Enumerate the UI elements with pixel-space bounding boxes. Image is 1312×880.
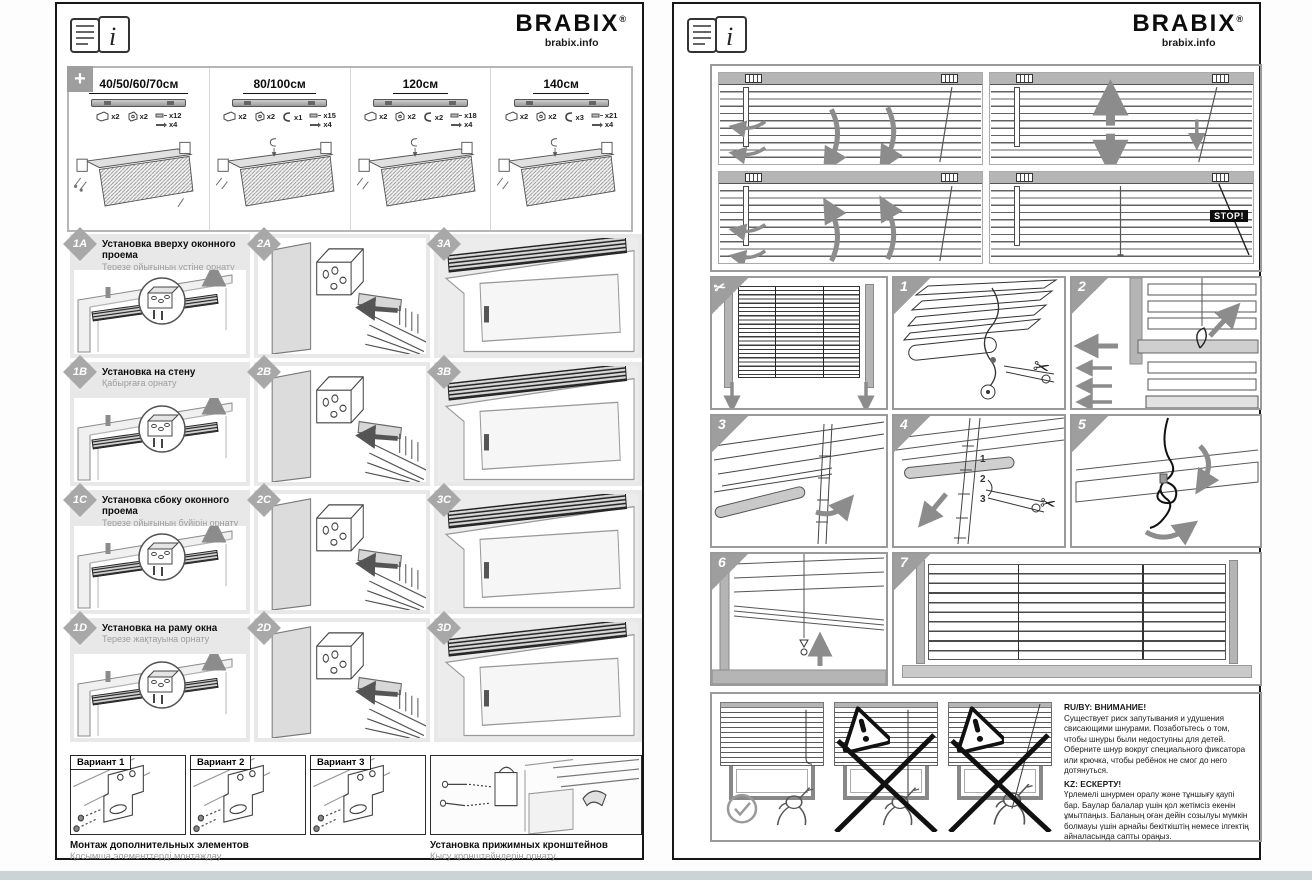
- step-title: Установка сбоку оконного проема: [102, 495, 246, 518]
- step-badge: 2B: [249, 357, 279, 387]
- step-badge: 3A: [429, 229, 459, 259]
- step-title: Установка на стену: [102, 367, 246, 378]
- step-2d-panel: 2D: [254, 618, 430, 742]
- registered-mark: ®: [1236, 14, 1245, 24]
- step-badge: 1C: [65, 485, 95, 515]
- cut-step-4-panel: 4 1 2 3 ✂: [892, 414, 1066, 548]
- step-row-c: 1C Установка сбоку оконного проемаТерезе…: [70, 490, 642, 614]
- rotation-arrows: [719, 73, 982, 164]
- install-illustration: [74, 654, 246, 738]
- danger-overlay: [948, 702, 1052, 832]
- brand-name: BRABIX: [1132, 10, 1236, 37]
- brand-site: brabix.info: [515, 37, 628, 49]
- parts-list: x2 x2 x12 x4: [69, 111, 209, 130]
- booklet-info-icon: i: [686, 14, 750, 56]
- variant-label: Вариант 2: [190, 755, 251, 770]
- blind-kit-illustration: [214, 133, 345, 219]
- clamp-illustration: [431, 756, 641, 834]
- plus-badge: +: [67, 66, 93, 92]
- caption-clamp-brackets: Установка прижимных кронштейнов Қысу кро…: [430, 840, 608, 861]
- scissors-icon: ✂: [711, 277, 749, 315]
- brand-logo: BRABIX® brabix.info: [515, 12, 628, 49]
- cut-step-7-panel: 7: [892, 552, 1262, 686]
- step-badge: 1D: [65, 613, 95, 643]
- bottom-strip: [0, 871, 1312, 880]
- step-badge: 1A: [65, 229, 95, 259]
- bracket-icon: [127, 111, 138, 122]
- brand-site: brabix.info: [1132, 37, 1245, 49]
- step-badge: 1B: [65, 357, 95, 387]
- step-1b-panel: 1B Установка на стенуҚабырғаға орнату: [70, 362, 250, 486]
- blind-kit-illustration: [73, 133, 204, 219]
- clamp-brackets-panel: [430, 755, 642, 835]
- variant-label: Вариант 3: [310, 755, 371, 770]
- screws-dowels-icon: [309, 112, 321, 119]
- step-3a-panel: 3A: [434, 234, 642, 358]
- kit-size-80-100: 80/100см x2 x2 x1 x15 x4: [209, 68, 350, 230]
- step-row-b: 1B Установка на стенуҚабырғаға орнату 2B…: [70, 362, 642, 486]
- bracket-icon: [505, 111, 518, 122]
- cut-step-6-panel: 6: [710, 552, 888, 686]
- svg-text:i: i: [109, 22, 116, 51]
- bracket-icon: [254, 111, 265, 122]
- step-badge: 2C: [249, 485, 279, 515]
- warning-title-ru: RU/BY: ВНИМАНИЕ!: [1064, 702, 1146, 712]
- variant-1-panel: Вариант 1: [70, 755, 186, 835]
- step-badge: 2D: [249, 613, 279, 643]
- step-badge: 3C: [429, 485, 459, 515]
- cut-step-1-panel: 1 ✂: [892, 276, 1066, 410]
- child-figure: [884, 788, 920, 825]
- operation-panel: STOP!: [710, 64, 1262, 272]
- size-label: 80/100см: [243, 77, 315, 94]
- parts-list: x2 x2 x3 x21 x4: [491, 111, 631, 130]
- danger-example-2: [948, 702, 1052, 832]
- booklet-info-icon: i: [69, 14, 133, 56]
- screws-dowels-icon: [450, 112, 462, 119]
- size-label: 140см: [533, 77, 589, 94]
- support-clip-icon: [423, 111, 433, 123]
- lift-arrows: [990, 73, 1253, 164]
- warning-body-ru: Существует риск запутывания и удушения с…: [1064, 714, 1252, 777]
- support-clip-icon: [564, 111, 574, 123]
- support-clip-icon: [282, 111, 292, 123]
- step-3b-panel: 3B: [434, 362, 642, 486]
- kit-size-120: 120см x2 x2 x2 x18 x4: [350, 68, 491, 230]
- step-row-d: 1D Установка на раму окнаТерезе жақтауын…: [70, 618, 642, 742]
- step-number-badge: 4: [893, 415, 931, 453]
- danger-example-1: [834, 702, 938, 832]
- result-illustration: [438, 622, 638, 738]
- bracket-detail-illustration: [258, 366, 426, 482]
- step-3d-panel: 3D: [434, 618, 642, 742]
- kit-size-40-70: 40/50/60/70см x2 x2 x12 x4: [69, 68, 209, 230]
- step-number-badge: 1: [893, 277, 931, 315]
- parts-list: x2 x2 x2 x18 x4: [351, 111, 491, 130]
- variants-row: Вариант 1 Вариант 2 Вариант 3: [70, 755, 642, 835]
- install-illustration: [74, 270, 246, 354]
- step-1d-panel: 1D Установка на раму окнаТерезе жақтауын…: [70, 618, 250, 742]
- step-1c-panel: 1C Установка сбоку оконного проемаТерезе…: [70, 490, 250, 614]
- step-subtitle-kz: Терезе жақтауына орнату: [102, 634, 246, 644]
- danger-overlay: [834, 702, 938, 832]
- step-number-badge: 6: [711, 553, 749, 591]
- cut-step-2-panel: 2: [1070, 276, 1262, 410]
- safe-example: [720, 702, 824, 832]
- screw-icon: [591, 122, 603, 128]
- step-subtitle-kz: Қабырғаға орнату: [102, 378, 246, 388]
- variant-2-panel: Вариант 2: [190, 755, 306, 835]
- finished-blind: [928, 564, 1226, 660]
- bracket-icon: [535, 111, 546, 122]
- bracket-icon: [364, 111, 377, 122]
- result-illustration: [438, 366, 638, 482]
- step-2c-panel: 2C: [254, 490, 430, 614]
- bracket-icon: [394, 111, 405, 122]
- brand-logo: BRABIX® brabix.info: [1132, 12, 1245, 49]
- step-badge: 2A: [249, 229, 279, 259]
- step-row-a: 1A Установка вверху оконного проемаТерез…: [70, 234, 642, 358]
- brand-name: BRABIX: [515, 10, 619, 37]
- warning-body-kz: Үрлемелі шнурмен оралу және тұншығу қауп…: [1064, 790, 1252, 843]
- cut-step-5-panel: 5: [1070, 414, 1262, 548]
- screws-dowels-icon: [155, 112, 167, 119]
- step-2a-panel: 2A: [254, 234, 430, 358]
- window-frame-side: [1229, 560, 1238, 664]
- safety-warning-panel: RU/BY: ВНИМАНИЕ! Существует риск запутыв…: [710, 692, 1262, 842]
- step-2b-panel: 2B: [254, 362, 430, 486]
- blind-kit-illustration: [355, 133, 486, 219]
- headrail-graphic: [514, 99, 609, 107]
- step-number-badge: 7: [893, 553, 931, 591]
- op-tilt-open: [718, 171, 983, 264]
- bracket-icon: [96, 111, 109, 122]
- bracket-icon: [223, 111, 236, 122]
- bracket-detail-illustration: [258, 494, 426, 610]
- warning-text: RU/BY: ВНИМАНИЕ! Существует риск запутыв…: [1064, 702, 1252, 845]
- page-left: i BRABIX® brabix.info + 40/50/60/70см x2…: [55, 2, 644, 860]
- caption-additional-elements: Монтаж дополнительных элементов Қосымша …: [70, 840, 249, 861]
- op-tilt-close: [718, 72, 983, 165]
- registered-mark: ®: [619, 14, 628, 24]
- bracket-detail-illustration: [258, 622, 426, 738]
- install-illustration: [74, 526, 246, 610]
- op-raise-lower: [989, 72, 1254, 165]
- screw-icon: [309, 122, 321, 128]
- step-title: Установка вверху оконного проема: [102, 239, 246, 262]
- headrail-graphic: [373, 99, 468, 107]
- step-number-badge: 2: [1071, 277, 1109, 315]
- svg-text:i: i: [726, 22, 733, 51]
- size-label: 40/50/60/70см: [89, 77, 188, 94]
- install-illustration: [74, 398, 246, 482]
- size-label: 120см: [393, 77, 449, 94]
- kit-contents-panel: + 40/50/60/70см x2 x2 x12 x4: [67, 66, 633, 232]
- safe-overlay: [720, 702, 824, 832]
- kit-size-140: 140см x2 x2 x3 x21 x4: [490, 68, 631, 230]
- screws-dowels-icon: [591, 112, 603, 119]
- stop-label: STOP!: [1210, 210, 1248, 222]
- scissors-glyph: ✂: [1039, 492, 1058, 517]
- screw-icon: [450, 122, 462, 128]
- op-cord-stop: STOP!: [989, 171, 1254, 264]
- blind-kit-illustration: [495, 133, 626, 219]
- manual-scan: i BRABIX® brabix.info + 40/50/60/70см x2…: [0, 0, 1312, 880]
- window-sill: [902, 665, 1252, 678]
- headrail-graphic: [232, 99, 327, 107]
- bracket-detail-illustration: [258, 238, 426, 354]
- step-number-badge: 5: [1071, 415, 1109, 453]
- step-number-badge: 3: [711, 415, 749, 453]
- variant-label: Вариант 1: [70, 755, 131, 770]
- page-right: i BRABIX® brabix.info: [672, 2, 1261, 860]
- cut-overview-panel: ✂: [710, 276, 888, 410]
- warning-title-kz: KZ: ЕСКЕРТУ!: [1064, 779, 1121, 789]
- result-illustration: [438, 238, 638, 354]
- rotation-arrows: [719, 172, 982, 263]
- step-badge: 3B: [429, 357, 459, 387]
- result-illustration: [438, 494, 638, 610]
- screw-icon: [155, 122, 167, 128]
- variant-3-panel: Вариант 3: [310, 755, 426, 835]
- step-1a-panel: 1A Установка вверху оконного проемаТерез…: [70, 234, 250, 358]
- headrail-graphic: [91, 99, 186, 107]
- parts-list: x2 x2 x1 x15 x4: [210, 111, 350, 130]
- step-badge: 3D: [429, 613, 459, 643]
- cut-step-3-panel: 3: [710, 414, 888, 548]
- ladder-marks: 1 2 3: [980, 454, 986, 505]
- step-3c-panel: 3C: [434, 490, 642, 614]
- step-title: Установка на раму окна: [102, 623, 246, 634]
